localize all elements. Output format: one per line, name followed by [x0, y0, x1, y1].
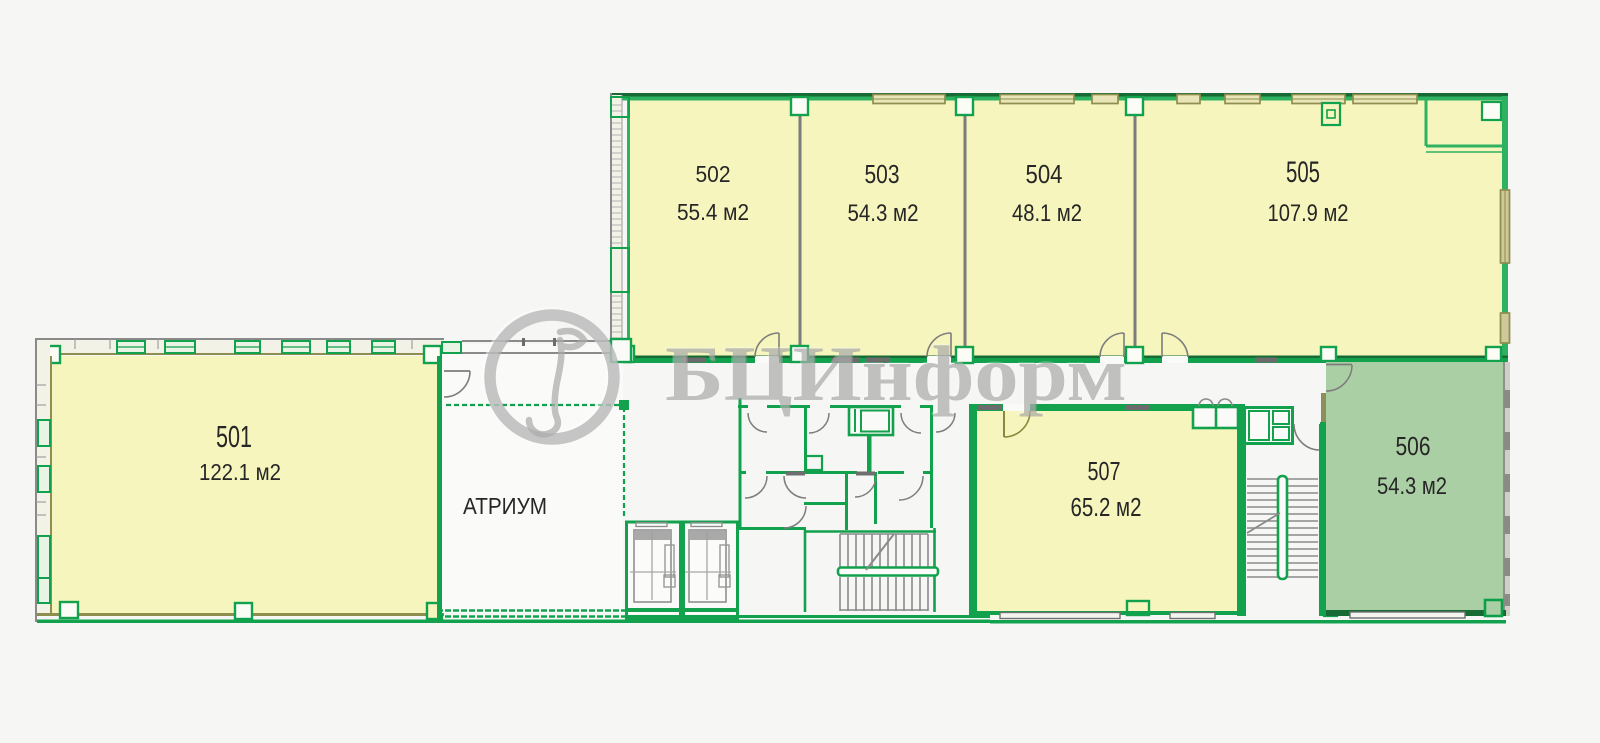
svg-text:107.9 м2: 107.9 м2 [1268, 200, 1349, 227]
svg-text:54.3 м2: 54.3 м2 [848, 200, 919, 227]
svg-text:502: 502 [696, 161, 731, 187]
svg-text:507: 507 [1088, 456, 1121, 486]
svg-text:506: 506 [1396, 431, 1431, 461]
svg-text:54.3 м2: 54.3 м2 [1377, 473, 1447, 500]
svg-text:АТРИУМ: АТРИУМ [463, 493, 547, 519]
svg-text:48.1 м2: 48.1 м2 [1012, 200, 1082, 227]
svg-text:55.4 м2: 55.4 м2 [677, 199, 749, 225]
svg-text:122.1 м2: 122.1 м2 [199, 459, 281, 485]
svg-text:65.2 м2: 65.2 м2 [1071, 494, 1142, 522]
svg-text:505: 505 [1286, 156, 1320, 189]
svg-text:501: 501 [216, 419, 252, 454]
svg-text:БЦИнформ: БЦИнформ [665, 330, 1127, 417]
svg-text:503: 503 [865, 161, 900, 189]
svg-text:504: 504 [1026, 161, 1063, 189]
